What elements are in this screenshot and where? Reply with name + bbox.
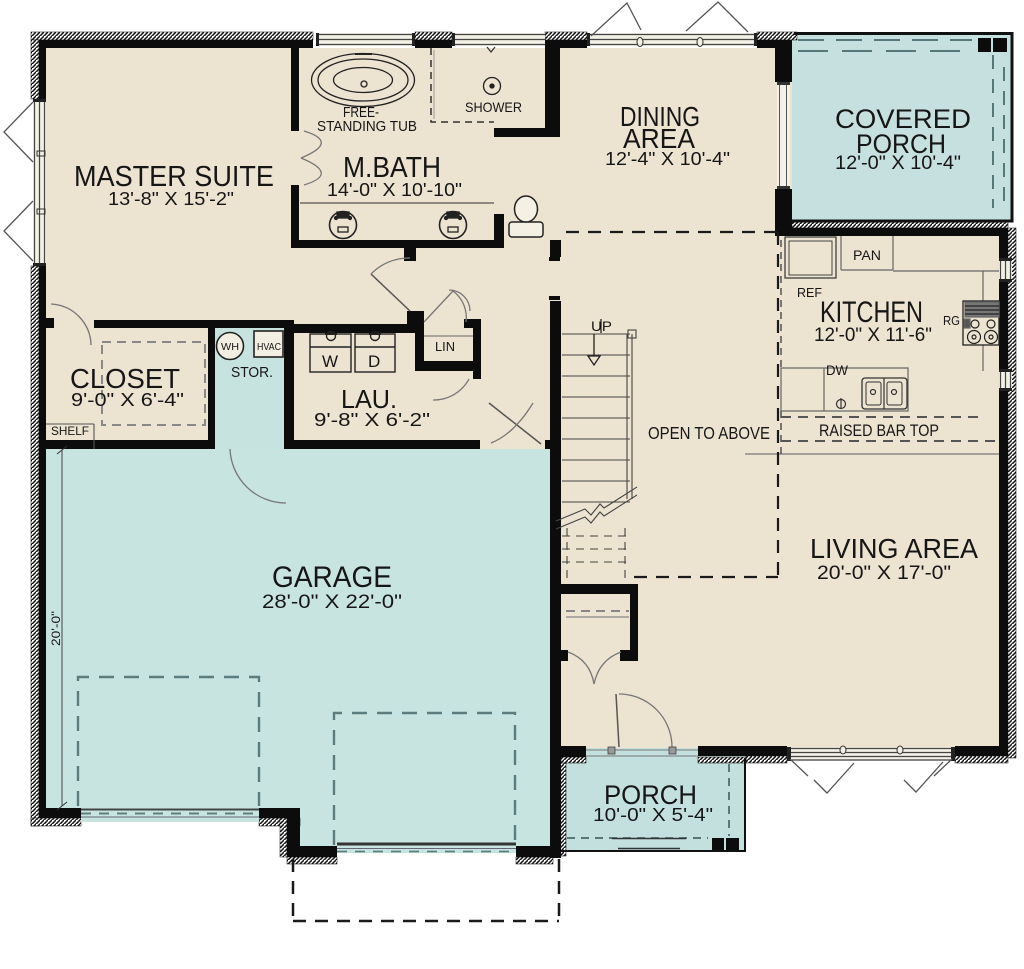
svg-text:9'-0" X 6'-4": 9'-0" X 6'-4" (71, 390, 184, 410)
svg-text:HVAC: HVAC (257, 342, 281, 353)
svg-text:12'-4" X 10'-4": 12'-4" X 10'-4" (605, 148, 730, 169)
svg-text:REF: REF (797, 285, 822, 300)
svg-text:OPEN TO ABOVE: OPEN TO ABOVE (648, 423, 770, 443)
svg-text:12'-0" X 11'-6": 12'-0" X 11'-6" (814, 325, 932, 346)
svg-text:SHELF: SHELF (51, 424, 89, 438)
svg-text:20'-0": 20'-0" (49, 611, 63, 646)
svg-text:12'-0" X 10'-4": 12'-0" X 10'-4" (835, 153, 961, 174)
svg-text:STANDING TUB: STANDING TUB (317, 118, 417, 135)
svg-text:UP: UP (591, 318, 612, 334)
svg-text:WH: WH (221, 341, 239, 353)
svg-text:RG: RG (943, 313, 960, 328)
svg-text:LIVING AREA: LIVING AREA (810, 533, 978, 564)
svg-text:14'-0" X 10'-10": 14'-0" X 10'-10" (327, 179, 462, 200)
svg-text:13'-8" X 15'-2": 13'-8" X 15'-2" (108, 189, 234, 209)
svg-text:D: D (368, 352, 380, 371)
svg-text:10'-0" X 5'-4": 10'-0" X 5'-4" (593, 805, 713, 825)
svg-text:28'-0" X 22'-0": 28'-0" X 22'-0" (262, 591, 402, 613)
svg-text:20'-0" X 17'-0": 20'-0" X 17'-0" (817, 563, 951, 584)
svg-text:STOR.: STOR. (231, 364, 273, 381)
svg-text:RAISED BAR TOP: RAISED BAR TOP (819, 421, 939, 440)
svg-text:GARAGE: GARAGE (272, 561, 392, 594)
svg-text:LIN: LIN (435, 339, 455, 354)
svg-text:DW: DW (826, 362, 849, 378)
svg-text:9'-8" X 6'-2": 9'-8" X 6'-2" (314, 410, 430, 430)
svg-text:PAN: PAN (853, 247, 881, 263)
svg-text:W: W (322, 352, 338, 371)
svg-text:SHOWER: SHOWER (465, 99, 522, 115)
